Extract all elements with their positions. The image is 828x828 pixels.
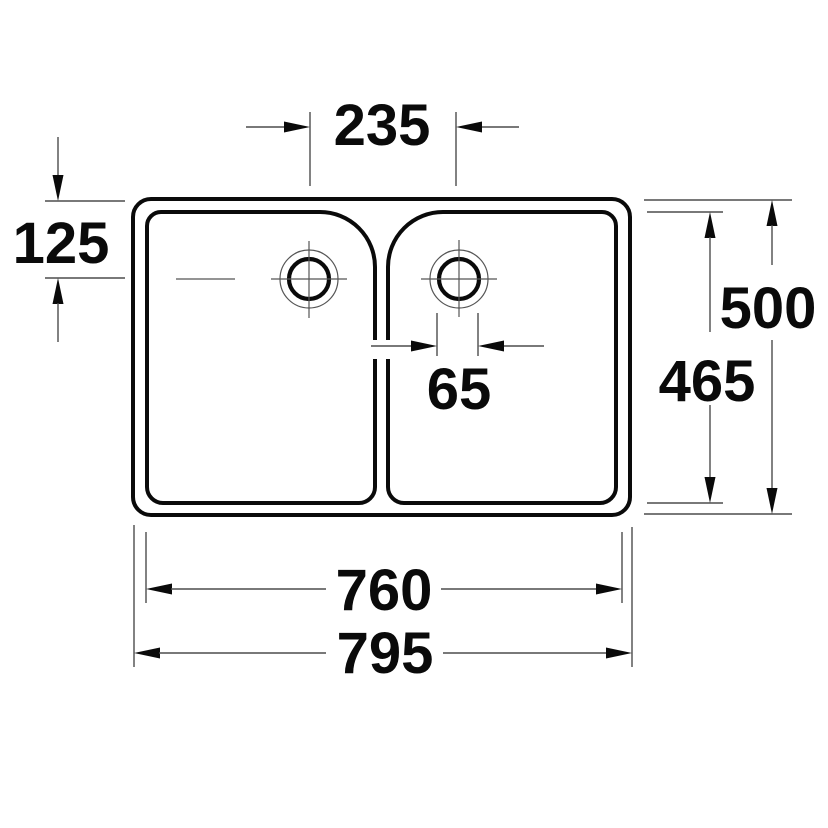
dimension-465: 465 (647, 212, 755, 503)
left-bowl (147, 212, 375, 503)
sink-dimension-drawing: 235 125 500 (0, 0, 828, 828)
dim-65-label: 65 (427, 357, 492, 422)
dim-760-arrow-right (596, 584, 622, 595)
dimension-235: 235 (246, 93, 519, 186)
dimension-760: 760 (146, 532, 622, 623)
dim-500-label: 500 (720, 276, 817, 341)
dim-465-arrow-up (705, 212, 716, 238)
dim-235-arrow-left (284, 122, 310, 133)
dim-465-arrow-down (705, 477, 716, 503)
dim-235-label: 235 (334, 93, 431, 158)
dimension-125: 125 (13, 137, 125, 342)
dim-795-arrow-left (134, 648, 160, 659)
dim-795-label: 795 (337, 621, 434, 686)
dim-125-label: 125 (13, 211, 110, 276)
dim-125-arrow-down (53, 175, 64, 201)
dim-465-label: 465 (659, 349, 756, 414)
dim-760-label: 760 (336, 558, 433, 623)
divider-gap (368, 340, 395, 359)
dim-125-arrow-up (53, 278, 64, 304)
dim-500-arrow-down (767, 488, 778, 514)
dim-235-arrow-right (456, 122, 482, 133)
dim-795-arrow-right (606, 648, 632, 659)
dim-760-arrow-left (146, 584, 172, 595)
dim-500-arrow-up (767, 200, 778, 226)
drawing-svg: 235 125 500 (0, 0, 828, 828)
right-bowl (388, 212, 616, 503)
